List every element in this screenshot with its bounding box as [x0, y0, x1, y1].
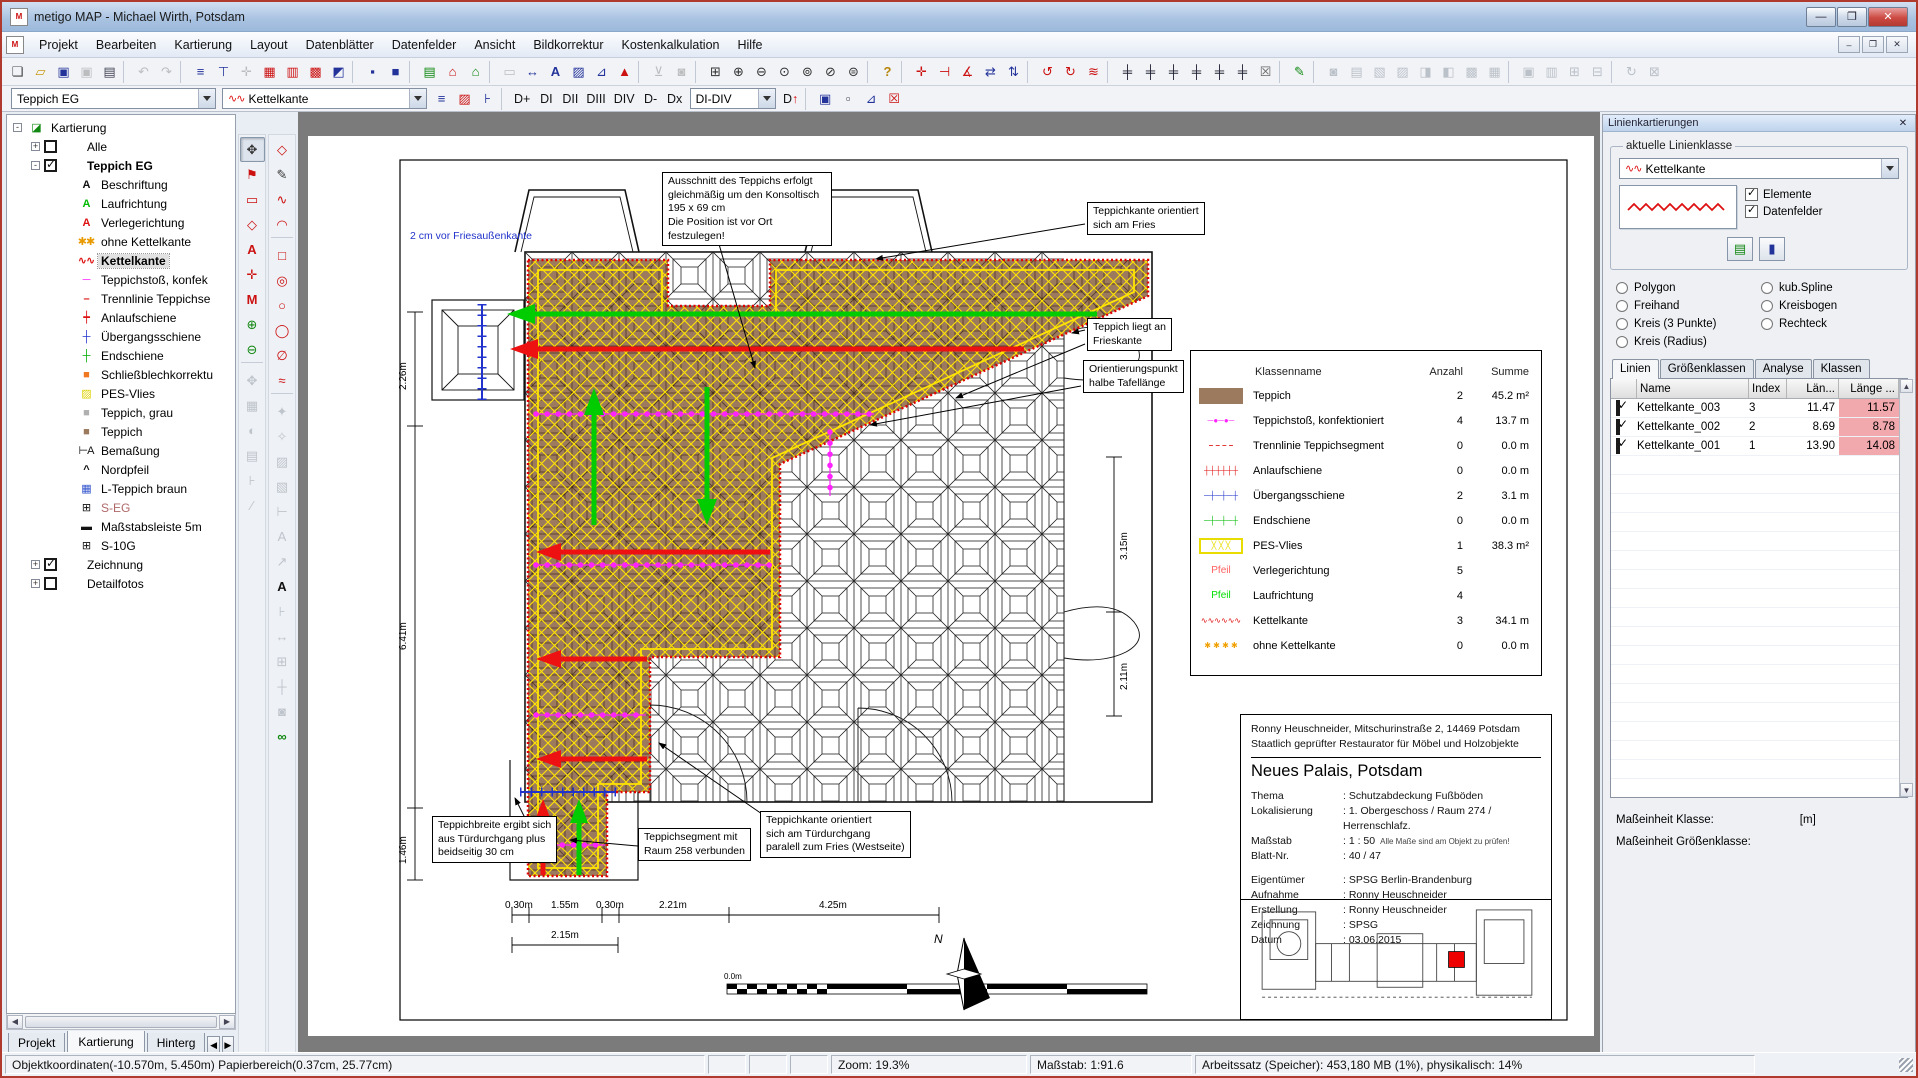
mdi-restore-button[interactable]: ❐	[1862, 36, 1884, 53]
tree-beschriftung[interactable]: A Beschriftung	[7, 175, 235, 194]
scroll-up-icon[interactable]: ▲	[1900, 379, 1913, 393]
line-length-class: 11.57	[1839, 399, 1899, 417]
height-h-icon[interactable]: ╪	[1139, 60, 1162, 83]
datafield-range-combo[interactable]: DI-DIV	[690, 88, 776, 109]
sep[interactable]	[352, 61, 359, 83]
tree-item-label: ohne Kettelkante	[98, 235, 194, 249]
tree-item-label: Kettelkante	[98, 254, 169, 268]
geo-redo-icon[interactable]: ↻	[1059, 60, 1082, 83]
geo-undo-icon[interactable]: ↺	[1036, 60, 1059, 83]
tree-endschiene[interactable]: ┼ Endschiene	[7, 346, 235, 365]
mdi-close-button[interactable]: ✕	[1886, 36, 1908, 53]
titleblock-value: : 40 / 47	[1343, 849, 1541, 864]
chevron-down-icon[interactable]	[1881, 159, 1898, 178]
menu-bar: M ProjektBearbeitenKartierungLayoutDaten…	[2, 32, 1916, 58]
img-c-icon[interactable]: ⊞	[1563, 60, 1586, 83]
line-length-class: 14.08	[1839, 437, 1899, 455]
rect-tool[interactable]: □	[270, 243, 295, 268]
scroll-down-icon[interactable]: ▼	[1900, 783, 1913, 797]
img-b-icon[interactable]: ▥	[1540, 60, 1563, 83]
datafield-delete-button[interactable]: Dx	[663, 88, 687, 109]
line-style-preview-button[interactable]	[1619, 185, 1737, 229]
callout-orientierungspunkt[interactable]: Orientierungspunkt halbe Tafellänge	[1083, 360, 1184, 393]
label-tool[interactable]: A	[240, 237, 265, 262]
tree-item-label: S-EG	[98, 501, 133, 515]
triangle-hatch-icon[interactable]: ⊿	[860, 87, 883, 110]
arrow-ne-tool[interactable]: ↗	[270, 549, 295, 574]
class-tree-icon[interactable]: ⊦	[476, 87, 499, 110]
copy-elements-button[interactable]: ▤	[1727, 237, 1753, 261]
radio-rechteck[interactable]: Rechteck	[1761, 318, 1904, 330]
tree-checkbox[interactable]	[44, 140, 57, 153]
snap-minus-icon[interactable]: ⊣	[933, 60, 956, 83]
palette-close-icon[interactable]: ✕	[1896, 118, 1910, 129]
window-title: metigo MAP - Michael Wirth, Potsdam	[34, 10, 245, 24]
query-point-tool[interactable]: ✛	[240, 262, 265, 287]
waves-icon[interactable]: ≋	[1082, 60, 1105, 83]
tree-item-icon: ◪	[26, 121, 46, 134]
tree-checkbox[interactable]	[44, 577, 57, 590]
undo-icon[interactable]: ↶	[132, 60, 155, 83]
image-add-icon[interactable]: ⌂	[464, 60, 487, 83]
tree-item-label: PES-Vlies	[98, 387, 158, 401]
layers-icon[interactable]: ▤	[418, 60, 441, 83]
legend-box[interactable]: Klassenname Anzahl Summe Teppich 2 45.2 …	[1190, 350, 1542, 676]
sep[interactable]	[123, 61, 130, 83]
legend-swatch: ╳ ╳ ╳	[1199, 538, 1243, 554]
height-t-icon[interactable]: ╪	[1208, 60, 1231, 83]
class-structure-icon[interactable]: ≡	[430, 87, 453, 110]
table-3d-icon[interactable]: ▩	[304, 60, 327, 83]
tree-nordpfeil[interactable]: ^ Nordpfeil	[7, 460, 235, 479]
wave-tool[interactable]: ≈	[270, 368, 295, 393]
north-compass-icon[interactable]: ▲	[613, 60, 636, 83]
scrollbar-thumb[interactable]	[25, 1016, 217, 1028]
rotate-icon[interactable]: ↻	[1620, 60, 1643, 83]
chevron-down-icon[interactable]	[198, 89, 215, 108]
tree-item-icon: ✱✱	[76, 235, 96, 248]
levels-icon[interactable]: ⊿	[590, 60, 613, 83]
edit-draw-icon[interactable]: ✎	[1288, 60, 1311, 83]
radio-freihand[interactable]: Freihand	[1616, 300, 1759, 312]
tree-detailfotos[interactable]: + Detailfotos	[7, 574, 235, 593]
query-m-tool[interactable]: M	[240, 287, 265, 312]
new-icon[interactable]: ❏	[6, 60, 29, 83]
drawing-toolstrips: ✥⚑▭◇A✛M⊕⊖✥▦◐▤⊦∕ ◇✎∿◠□◎○◯∅≈✦✧▨▧⊢A↗A⊦↔⊞┼◙∞	[238, 114, 298, 1054]
legend-swatch: ┼┼┼┼┼┼	[1199, 463, 1243, 479]
crosshair-tool[interactable]: ┼	[270, 674, 295, 699]
diagram-icon[interactable]: ◩	[327, 60, 350, 83]
flag-point-tool[interactable]: ⚑	[240, 162, 265, 187]
img-a-icon[interactable]: ▣	[1517, 60, 1540, 83]
print-icon[interactable]: ▤	[98, 60, 121, 83]
mirror-v-icon[interactable]: ⇅	[1002, 60, 1025, 83]
scroll-right-icon[interactable]: ▶	[219, 1015, 235, 1029]
note-friesaussenkante[interactable]: 2 cm vor Friesaußenkante	[410, 230, 532, 242]
maximize-button[interactable]: ❐	[1837, 7, 1867, 27]
titleblock-title: Neues Palais, Potsdam	[1251, 762, 1541, 781]
photo-7-icon[interactable]: ▩	[1460, 60, 1483, 83]
spline-tool[interactable]: ∿	[270, 187, 295, 212]
titleblock-subtitle: Staatlich geprüfter Restaurator für Möbe…	[1251, 737, 1541, 752]
callout-liegt-frieskante[interactable]: Teppich liegt an Frieskante	[1087, 318, 1172, 351]
resize-grip[interactable]	[1899, 1058, 1913, 1072]
freehand-tool[interactable]: ✎	[270, 162, 295, 187]
datafield-1-button[interactable]: DI	[534, 88, 558, 109]
dim-bottom-3: 0.30m	[596, 900, 624, 911]
tree-item-label: Teppich	[98, 425, 145, 439]
tab-groessenklassen[interactable]: Größenklassen	[1660, 359, 1754, 378]
titleblock-key: Eigentümer	[1251, 873, 1343, 888]
circle-center-tool[interactable]: ◎	[270, 268, 295, 293]
level-icon[interactable]: ⊻	[647, 60, 670, 83]
sep[interactable]	[638, 61, 645, 83]
radio-icon	[1616, 282, 1628, 294]
zoom-in-icon[interactable]: ⊕	[727, 60, 750, 83]
table-vscrollbar[interactable]: ▲ ▼	[1899, 379, 1913, 797]
zoom-prev-icon[interactable]: ⊘	[819, 60, 842, 83]
magic-tool[interactable]: ✦	[270, 399, 295, 424]
close-button[interactable]: ✕	[1868, 7, 1908, 27]
table-icon[interactable]: ▥	[281, 60, 304, 83]
line-row-kettelkante-002[interactable]: Kettelkante_002 2 8.69 8.78	[1611, 418, 1899, 437]
tree-checkbox[interactable]	[44, 558, 57, 571]
dim-left-2: 6.41m	[398, 622, 409, 650]
circle-3p-tool[interactable]: ○	[270, 293, 295, 318]
menu-datenfelder[interactable]: Datenfelder	[383, 34, 466, 56]
tree-uebergangsschiene[interactable]: ┼ Übergangsschiene	[7, 327, 235, 346]
datafield-book-button[interactable]: ▮	[1759, 237, 1785, 261]
datafield-remove-button[interactable]: D-	[639, 88, 663, 109]
paint-tool[interactable]: ◐	[240, 418, 265, 443]
tree-massstabsleiste[interactable]: ▬ Maßstabsleiste 5m	[7, 517, 235, 536]
titleblock-value: : SPSG Berlin-Brandenburg	[1343, 873, 1541, 888]
scroll-left-icon[interactable]: ◀	[7, 1015, 23, 1029]
image-plan-icon[interactable]: ⌂	[441, 60, 464, 83]
legend-swatch: ─┼─┼─┼	[1199, 513, 1243, 529]
dim-bottom-1: 0.30m	[505, 900, 533, 911]
sep[interactable]	[409, 61, 416, 83]
legend-header: Klassenname Anzahl Summe	[1199, 361, 1531, 383]
line-name: Kettelkante_001	[1637, 440, 1749, 452]
callout-tuerdurchgang[interactable]: Teppichkante orientiert sich am Türdurch…	[760, 811, 911, 858]
menu-layout[interactable]: Layout	[241, 34, 297, 56]
tree-item-icon: ┼	[76, 331, 96, 343]
polygon-tool[interactable]: ◇	[270, 137, 295, 162]
sep[interactable]	[695, 61, 702, 83]
brush-tool[interactable]: ▧	[270, 474, 295, 499]
height-c-icon[interactable]: ╪	[1162, 60, 1185, 83]
text-a-tool[interactable]: A	[270, 524, 295, 549]
menu-projekt[interactable]: Projekt	[30, 34, 87, 56]
binocular-tool[interactable]: ∞	[270, 724, 295, 749]
pan-tool[interactable]: ✥	[240, 137, 265, 162]
menu-kostenkalkulation[interactable]: Kostenkalkulation	[613, 34, 729, 56]
menu-bildkorrektur[interactable]: Bildkorrektur	[524, 34, 612, 56]
move-tool[interactable]: ✥	[240, 368, 265, 393]
tree-zeichnung[interactable]: + Zeichnung	[7, 555, 235, 574]
tree-teppich-grau[interactable]: ■ Teppich, grau	[7, 403, 235, 422]
tree-expander[interactable]: +	[31, 579, 40, 588]
survey-icon[interactable]: ✛	[235, 60, 258, 83]
menu-datenblaetter[interactable]: Datenblätter	[297, 34, 383, 56]
text-move-tool[interactable]: A	[270, 574, 295, 599]
elemente-checkbox[interactable]: Elemente	[1745, 188, 1822, 201]
datafield-up-button[interactable]: D↑	[779, 88, 803, 109]
ellipse-tool[interactable]: ◯	[270, 318, 295, 343]
tree-s-eg[interactable]: ⊞ S-EG	[7, 498, 235, 517]
tree-checkbox[interactable]	[44, 159, 57, 172]
menu-hilfe[interactable]: Hilfe	[728, 34, 771, 56]
cad-remove-icon[interactable]: ☒	[1254, 60, 1277, 83]
tree-bemassung[interactable]: ⊢A Bemaßung	[7, 441, 235, 460]
calendar-icon[interactable]: ▣	[814, 87, 837, 110]
dim-right-2: 2.11m	[1119, 663, 1130, 690]
zoom-all-icon[interactable]: ⊚	[796, 60, 819, 83]
photo-tool[interactable]: ◙	[270, 699, 295, 724]
calendar-small-icon[interactable]: ▫	[837, 87, 860, 110]
dim-ref-tool[interactable]: ⊢	[270, 499, 295, 524]
photo-2-icon[interactable]: ▤	[1345, 60, 1368, 83]
radio-icon	[1761, 282, 1773, 294]
tiles-tool[interactable]: ▦	[240, 393, 265, 418]
sep[interactable]	[1279, 61, 1286, 83]
radio-icon	[1616, 300, 1628, 312]
edit-toolstrip: ✥⚑▭◇A✛M⊕⊖✥▦◐▤⊦∕	[238, 134, 266, 1054]
minimize-button[interactable]: —	[1806, 7, 1836, 27]
datenfelder-checkbox[interactable]: Datenfelder	[1745, 205, 1822, 218]
legend-swatch: – – – –	[1199, 438, 1243, 454]
mdi-minimize-button[interactable]: –	[1838, 36, 1860, 53]
callout-konsoltisch[interactable]: Ausschnitt des Teppichs erfolgt gleichmä…	[662, 172, 832, 246]
datafield-4-button[interactable]: DIV	[610, 88, 639, 109]
open-icon[interactable]: ▱	[29, 60, 52, 83]
datasheet-icon[interactable]: ▦	[258, 60, 281, 83]
stamp-icon[interactable]: ▭	[498, 60, 521, 83]
tree-item-icon: ▬	[76, 521, 96, 533]
chevron-down-icon[interactable]	[409, 89, 426, 108]
measure-width-icon[interactable]: ↔	[521, 60, 544, 83]
zoom-100-icon[interactable]: ⊙	[773, 60, 796, 83]
ellipse-rot-tool[interactable]: ∅	[270, 343, 295, 368]
tree-pes-vlies[interactable]: ▨ PES-Vlies	[7, 384, 235, 403]
dim-edit-tool[interactable]: ⊦	[270, 599, 295, 624]
tree-verlegerichtung[interactable]: A Verlegerichtung	[7, 213, 235, 232]
photo-4-icon[interactable]: ▨	[1391, 60, 1414, 83]
tree-kartierung[interactable]: - ◪ Kartierung	[7, 118, 235, 137]
tab-kartierung[interactable]: Kartierung	[67, 1031, 144, 1054]
menu-bearbeiten[interactable]: Bearbeiten	[87, 34, 165, 56]
radio-kreisbogen[interactable]: Kreisbogen	[1761, 300, 1904, 312]
callout-segment[interactable]: Teppichsegment mit Raum 258 verbunden	[638, 828, 751, 861]
photo-6-icon[interactable]: ◧	[1437, 60, 1460, 83]
titleblock-key: Thema	[1251, 789, 1343, 804]
tree-expander[interactable]: -	[13, 123, 22, 132]
table-tool[interactable]: ⊞	[270, 649, 295, 674]
magic-cad-tool[interactable]: ✧	[270, 424, 295, 449]
fill-hatch-tool[interactable]: ▨	[270, 449, 295, 474]
tree-item-icon: ▨	[76, 387, 96, 400]
radio-kreis-radius[interactable]: Kreis (Radius)	[1616, 336, 1759, 348]
layer-panel: - ◪ Kartierung + Alle - Teppich EG	[6, 114, 236, 1054]
tree-teppich-eg[interactable]: - Teppich EG	[7, 156, 235, 175]
callout-kante-fries[interactable]: Teppichkante orientiert sich am Fries	[1087, 202, 1205, 235]
zoom-pan-icon[interactable]: ⊜	[842, 60, 865, 83]
sep[interactable]	[1313, 61, 1320, 83]
project-structure-icon[interactable]: ≡	[189, 60, 212, 83]
tree-item-icon: ■	[76, 426, 96, 438]
row-checkbox[interactable]	[1616, 438, 1620, 454]
point-small-icon[interactable]: ▪	[361, 60, 384, 83]
photo-8-icon[interactable]: ▦	[1483, 60, 1506, 83]
titleblock-key: Maßstab	[1251, 834, 1343, 849]
tab-linien[interactable]: Linien	[1612, 359, 1659, 379]
radio-kub-spline[interactable]: kub.Spline	[1761, 282, 1904, 294]
tree-item-label: L-Teppich braun	[98, 482, 190, 496]
tree-trennlinie[interactable]: – Trennlinie Teppichse	[7, 289, 235, 308]
zoom-window-icon[interactable]: ⊞	[704, 60, 727, 83]
line-index: 2	[1749, 421, 1787, 433]
sep[interactable]	[901, 61, 908, 83]
hatch-icon[interactable]: ▨	[567, 60, 590, 83]
sep[interactable]	[1508, 61, 1515, 83]
tree-schliessblech[interactable]: ■ Schließblechkorrektu	[7, 365, 235, 384]
legend-class-name: Laufrichtung	[1253, 590, 1421, 602]
arc-tool[interactable]: ◠	[270, 212, 295, 237]
lines-table-header[interactable]: Name Index Län... Länge ...	[1611, 379, 1899, 399]
palette-lineclass-combo[interactable]: ∿∿ Kettelkante	[1619, 158, 1899, 179]
lines-table: Name Index Län... Länge ... Kettelkante_…	[1610, 378, 1908, 798]
tree-s-10g[interactable]: ⊞ S-10G	[7, 536, 235, 555]
tab-projekt[interactable]: Projekt	[8, 1033, 65, 1054]
legend-class-name: Teppichstoß, konfektioniert	[1253, 415, 1421, 427]
tree-ohne-kettelkante[interactable]: ✱✱ ohne Kettelkante	[7, 232, 235, 251]
status-coordinates: Objektkoordinaten(-10.570m, 5.450m) Papi…	[5, 1055, 705, 1074]
sep[interactable]	[180, 61, 187, 83]
radio-kreis-3-punkte[interactable]: Kreis (3 Punkte)	[1616, 318, 1759, 330]
angle-icon[interactable]: ∡	[956, 60, 979, 83]
dim-width-tool[interactable]: ↔	[270, 624, 295, 649]
legend-class-name: Trennlinie Teppichsegment	[1253, 440, 1421, 452]
tree-item-label: Teppich EG	[84, 159, 156, 173]
layer-merge-tool[interactable]: ▤	[240, 443, 265, 468]
mirror-h-icon[interactable]: ⇄	[979, 60, 1002, 83]
layer-zoom-in-tool[interactable]: ⊕	[240, 312, 265, 337]
sep[interactable]	[1027, 61, 1034, 83]
tree-laufrichtung[interactable]: A Laufrichtung	[7, 194, 235, 213]
save-as-icon[interactable]: ▣	[75, 60, 98, 83]
title-block[interactable]: Ronny Heuschneider, Mitschurinstraße 2, …	[1240, 714, 1552, 1020]
connect-tool[interactable]: ⊦	[240, 468, 265, 493]
legend-teppichstoss: ─●─●─ Teppichstoß, konfektioniert 4 13.7…	[1199, 408, 1531, 433]
menu-ansicht[interactable]: Ansicht	[465, 34, 524, 56]
line-row-kettelkante-003[interactable]: Kettelkante_003 3 11.47 11.57	[1611, 399, 1899, 418]
rect-select-tool[interactable]: ▭	[240, 187, 265, 212]
line-length-class: 8.78	[1839, 418, 1899, 436]
red-up-arrow-icon: ↑	[792, 92, 798, 106]
camera-icon[interactable]: ◙	[670, 60, 693, 83]
menu-kartierung[interactable]: Kartierung	[165, 34, 241, 56]
tab-hintergrund[interactable]: Hinterg	[147, 1033, 206, 1054]
clip-icon[interactable]: ⊠	[1643, 60, 1666, 83]
height-s-icon[interactable]: ╪	[1185, 60, 1208, 83]
photo-1-icon[interactable]: ◙	[1322, 60, 1345, 83]
palette-header[interactable]: Linienkartierungen ✕	[1603, 115, 1915, 132]
legend-verlegerichtung: Pfeil Verlegerichtung 5	[1199, 558, 1531, 583]
sep[interactable]	[1107, 61, 1114, 83]
snap-plus-icon[interactable]: ✛	[910, 60, 933, 83]
img-d-icon[interactable]: ⊟	[1586, 60, 1609, 83]
callout-teppichbreite[interactable]: Teppichbreite ergibt sich aus Türdurchga…	[432, 816, 557, 863]
tree-expander[interactable]: +	[31, 142, 40, 151]
sep[interactable]	[867, 61, 874, 83]
status-memory: Arbeitssatz (Speicher): 453,180 MB (1%),…	[1195, 1055, 1755, 1074]
height-cad-icon[interactable]: ╪	[1231, 60, 1254, 83]
legend-count: 0	[1421, 465, 1465, 477]
slash-tool[interactable]: ∕	[240, 493, 265, 518]
photo-5-icon[interactable]: ◨	[1414, 60, 1437, 83]
tree-item-label: Bemaßung	[98, 444, 163, 458]
lineclass-combo[interactable]: ∿∿ Kettelkante	[222, 88, 427, 109]
redo-icon[interactable]: ↷	[155, 60, 178, 83]
tree-item-icon: ▦	[76, 482, 96, 495]
row-checkbox[interactable]	[1616, 400, 1620, 416]
datafield-3-button[interactable]: DIII	[582, 88, 609, 109]
sep[interactable]	[1611, 61, 1618, 83]
title-bar[interactable]: M metigo MAP - Michael Wirth, Potsdam — …	[2, 2, 1916, 32]
status-scale: Maßstab: 1:91.6	[1030, 1055, 1192, 1074]
delete-red-icon[interactable]: ☒	[883, 87, 906, 110]
tree-alle[interactable]: + Alle	[7, 137, 235, 156]
layer-zoom-out-tool[interactable]: ⊖	[240, 337, 265, 362]
height-e-icon[interactable]: ╪	[1116, 60, 1139, 83]
class-combo[interactable]: Teppich EG	[11, 88, 216, 109]
radio-polygon[interactable]: Polygon	[1616, 282, 1759, 294]
sep[interactable]	[489, 61, 496, 83]
tree-anlaufschiene[interactable]: ┿ Anlaufschiene	[7, 308, 235, 327]
help-icon[interactable]: ?	[876, 60, 899, 83]
tree-l-teppich-braun[interactable]: ▦ L-Teppich braun	[7, 479, 235, 498]
point-large-icon[interactable]: ■	[384, 60, 407, 83]
tree-item-label: Alle	[84, 140, 110, 154]
legend-count: 4	[1421, 590, 1465, 602]
tab-klassen[interactable]: Klassen	[1813, 359, 1870, 378]
row-checkbox[interactable]	[1616, 419, 1620, 435]
tree-expander[interactable]: -	[31, 161, 40, 170]
text-icon[interactable]: A	[544, 60, 567, 83]
photo-3-icon[interactable]: ▧	[1368, 60, 1391, 83]
datafield-2-button[interactable]: DII	[558, 88, 582, 109]
tree-kettelkante[interactable]: ∿∿ Kettelkante	[7, 251, 235, 270]
chevron-down-icon[interactable]	[758, 89, 775, 108]
sep	[501, 88, 508, 110]
tree-teppichstoss[interactable]: ─ Teppichstoß, konfek	[7, 270, 235, 289]
tree-hscrollbar[interactable]: ◀ ▶	[6, 1014, 236, 1030]
tab-analyse[interactable]: Analyse	[1755, 359, 1812, 378]
legend-class-name: Verlegerichtung	[1253, 565, 1421, 577]
save-icon[interactable]: ▣	[52, 60, 75, 83]
datafield-add-button[interactable]: D+	[510, 88, 534, 109]
tree-teppich[interactable]: ■ Teppich	[7, 422, 235, 441]
zoom-out-icon[interactable]: ⊖	[750, 60, 773, 83]
legend-endschiene: ─┼─┼─┼ Endschiene 0 0.0 m	[1199, 508, 1531, 533]
line-row-kettelkante-001[interactable]: Kettelkante_001 1 13.90 14.08	[1611, 437, 1899, 456]
legend-ohne-kettelkante: ✱ ✱ ✱ ✱ ohne Kettelkante 0 0.0 m	[1199, 633, 1531, 658]
tree-expander[interactable]: +	[31, 560, 40, 569]
profile-icon[interactable]: ⊤	[212, 60, 235, 83]
poly-select-tool[interactable]: ◇	[240, 212, 265, 237]
hatch-preview-icon[interactable]: ▨	[453, 87, 476, 110]
